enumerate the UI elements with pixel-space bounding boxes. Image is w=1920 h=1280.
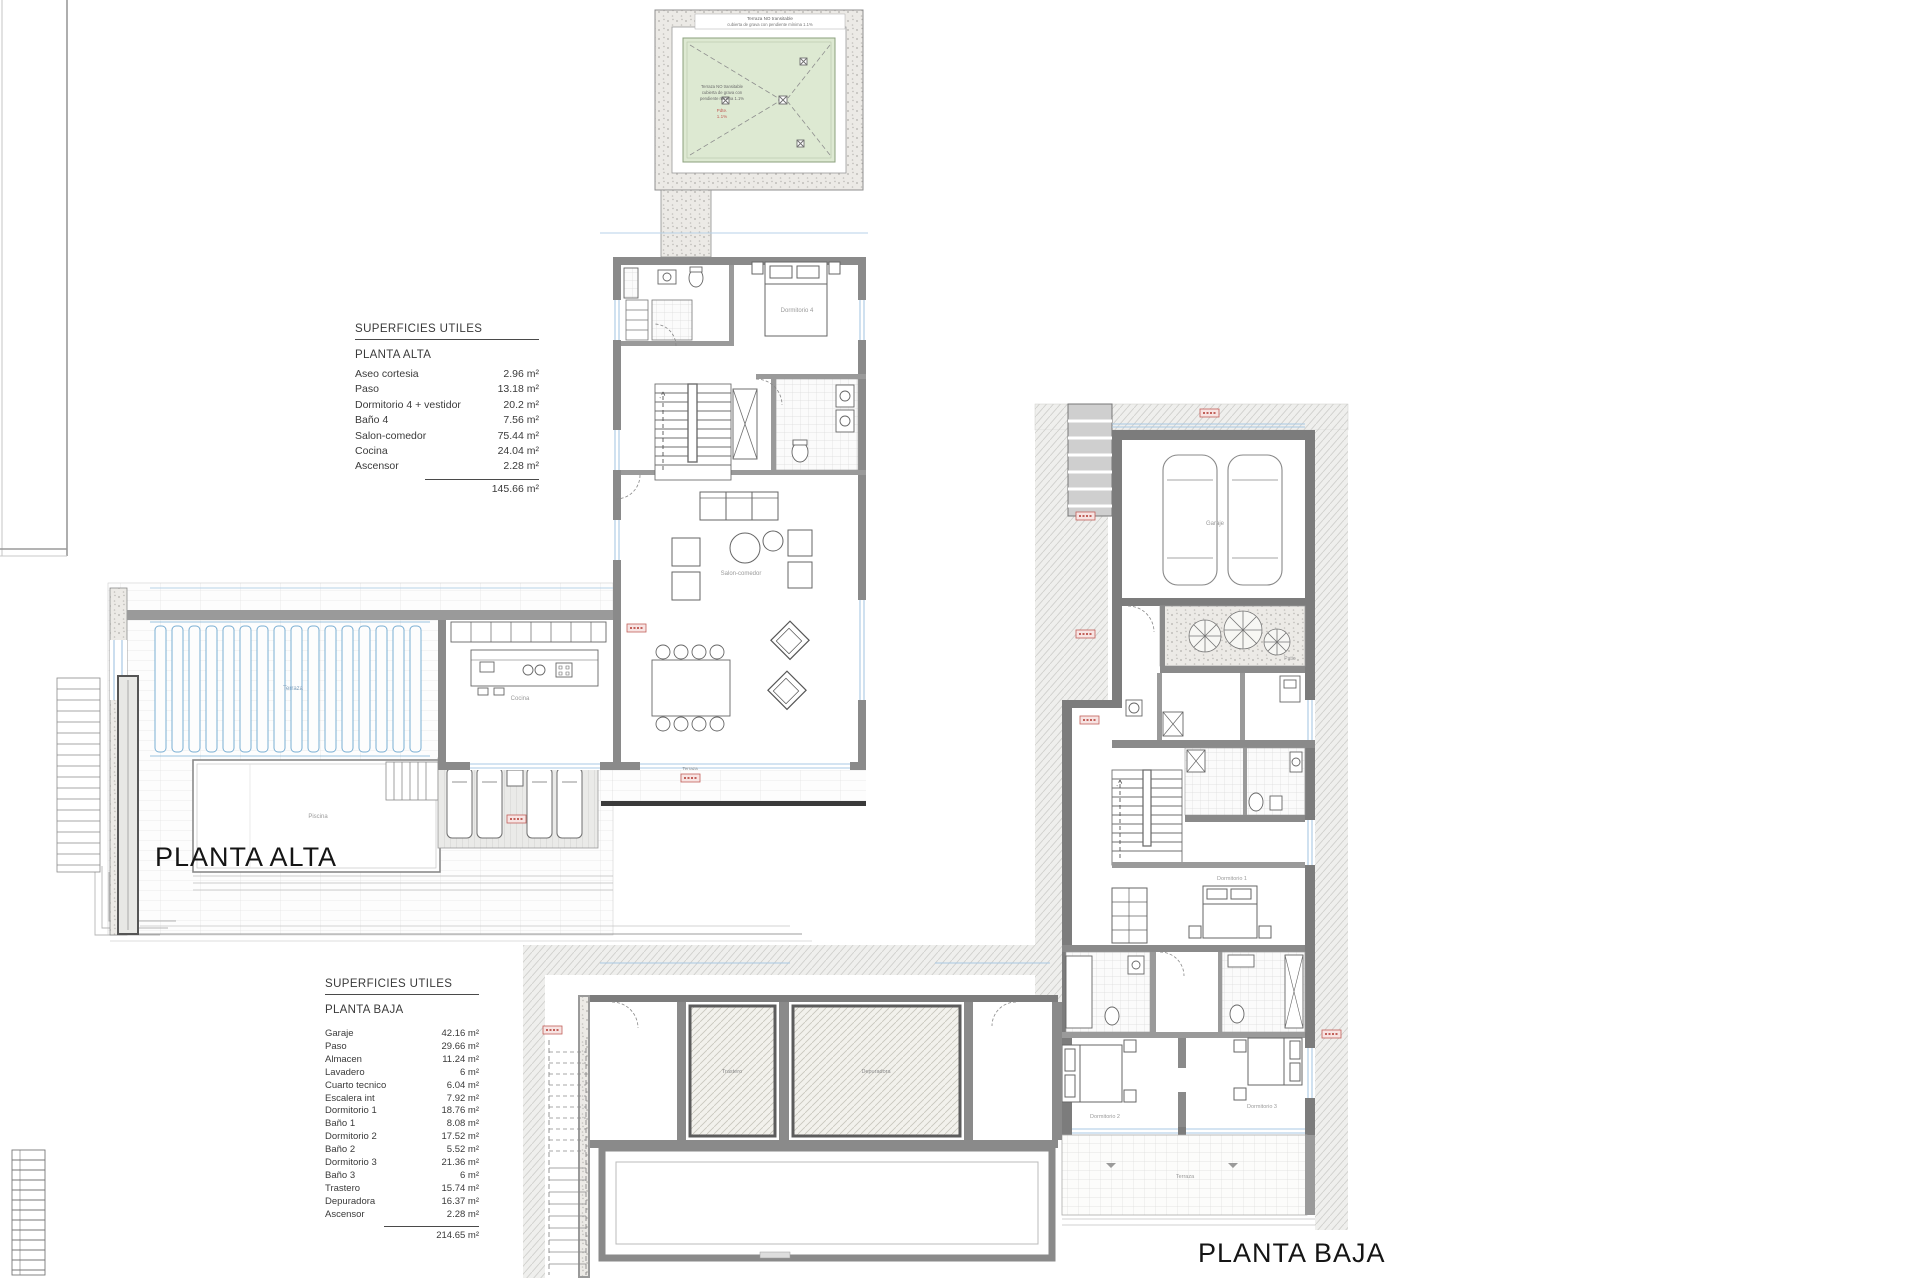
- floorplan-drawing: Terraza NO transitable cubierta de grava…: [0, 0, 1920, 1280]
- table-row: Depuradora16.37 m²: [325, 1196, 479, 1209]
- roof-detail-plan: Terraza NO transitable cubierta de grava…: [600, 10, 868, 257]
- bano4: [776, 379, 858, 470]
- roof-note-line2: cubierta de grava con: [702, 90, 743, 95]
- bath-band: [1185, 748, 1305, 822]
- table-header: SUPERFICIES UTILES: [355, 323, 539, 340]
- dormitorio2-label: Dormitorio 2: [1090, 1114, 1120, 1120]
- sun-deck: [438, 758, 598, 848]
- roof-red-note-line2: 1.1%: [717, 114, 727, 119]
- table-total: 145.66 m²: [425, 479, 539, 495]
- entry-steps: [1068, 404, 1112, 516]
- table-row: Dormitorio 321.36 m²: [325, 1157, 479, 1170]
- garaje-label: Garaje: [1206, 521, 1225, 527]
- roof-note-line1: Terraza NO transitable: [701, 84, 744, 89]
- kitchen: [451, 622, 606, 695]
- table-row: Ascensor2.28 m²: [355, 459, 539, 474]
- wardrobe: [626, 300, 692, 340]
- basement-wing-plan: Trastero Depuradora: [523, 945, 1062, 1278]
- table-header: SUPERFICIES UTILES: [325, 978, 479, 995]
- carpentry-tag-basement: [543, 1026, 562, 1034]
- table-row: Garaje42.16 m²: [325, 1028, 479, 1041]
- sheet-frame-lines: [0, 0, 67, 556]
- exterior-stair-west: [57, 678, 100, 872]
- table-rows: Aseo cortesia2.96 m² Paso13.18 m² Dormit…: [355, 367, 539, 475]
- table-row: Baño 18.08 m²: [325, 1118, 479, 1131]
- table-row: Baño 36 m²: [325, 1170, 479, 1183]
- table-row: Paso29.66 m²: [325, 1041, 479, 1054]
- table-row: Aseo cortesia2.96 m²: [355, 367, 539, 382]
- table-row: Cocina24.04 m²: [355, 444, 539, 459]
- table-row: Paso13.18 m²: [355, 382, 539, 397]
- table-row: Dormitorio 217.52 m²: [325, 1131, 479, 1144]
- bed-dormitorio4: [752, 262, 840, 336]
- table-rows: Garaje42.16 m² Paso29.66 m² Almacen11.24…: [325, 1028, 479, 1222]
- roof-banner-line1: Terraza NO transitable: [747, 16, 793, 21]
- drawing-sheet: Terraza NO transitable cubierta de grava…: [0, 0, 1920, 1280]
- trastero-label: Trastero: [722, 1069, 742, 1075]
- cocina-label: Cocina: [511, 696, 530, 702]
- table-row: Dormitorio 4 + vestidor20.2 m²: [355, 398, 539, 413]
- pool-label: Piscina: [308, 814, 328, 820]
- table-row: Lavadero6 m²: [325, 1067, 479, 1080]
- table-row: Baño 25.52 m²: [325, 1144, 479, 1157]
- pool-channel: [602, 1148, 1052, 1258]
- roof-banner-line2: cubierta de grava con pendiente mínima 1…: [727, 22, 813, 27]
- terrace-label: Terraza: [283, 686, 304, 692]
- surface-table-alta: SUPERFICIES UTILES PLANTA ALTA Aseo cort…: [355, 323, 539, 495]
- table-row: Trastero15.74 m²: [325, 1183, 479, 1196]
- roof-note-line3: pendiente mínima 1.1%: [700, 96, 744, 101]
- planta-alta-title: PLANTA ALTA: [155, 842, 337, 873]
- depuradora-label: Depuradora: [861, 1069, 891, 1075]
- table-row: Escalera int7.92 m²: [325, 1093, 479, 1106]
- table-row: Dormitorio 118.76 m²: [325, 1105, 479, 1118]
- roof-red-note-line1: Pdte.: [717, 108, 728, 113]
- deck-stair: [386, 762, 438, 800]
- table-floor-name: PLANTA ALTA: [355, 349, 539, 361]
- surface-table-baja: SUPERFICIES UTILES PLANTA BAJA Garaje42.…: [325, 978, 479, 1241]
- table-row: Salon-comedor75.44 m²: [355, 429, 539, 444]
- terraza-baja-label: Terraza: [1176, 1174, 1195, 1180]
- planta-baja-plan: Garaje Patio: [1035, 404, 1348, 1230]
- storage-rooms: Trastero Depuradora: [690, 1006, 960, 1136]
- corner-ladder: [12, 1150, 45, 1275]
- terraza-sur-label: Terraza: [682, 766, 698, 771]
- patio-label: Patio: [1284, 656, 1296, 662]
- dormitorio3-label: Dormitorio 3: [1247, 1104, 1277, 1110]
- table-row: Ascensor2.28 m²: [325, 1209, 479, 1222]
- table-floor-name: PLANTA BAJA: [325, 1004, 479, 1016]
- baja-terrace: Terraza: [1062, 1127, 1315, 1225]
- planta-baja-title: PLANTA BAJA: [1198, 1238, 1386, 1269]
- table-row: Almacen11.24 m²: [325, 1054, 479, 1067]
- dormitorio4-label: Dormitorio 4: [781, 308, 814, 314]
- salon-label: Salon-comedor: [721, 571, 762, 577]
- baja-staircase: [1112, 770, 1182, 865]
- table-row: Baño 47.56 m²: [355, 413, 539, 428]
- elevator: [733, 389, 757, 459]
- table-total: 214.65 m²: [384, 1226, 479, 1241]
- alta-staircase: [655, 384, 731, 480]
- table-row: Cuarto tecnico6.04 m²: [325, 1080, 479, 1093]
- dormitorio1-label: Dormitorio 1: [1217, 876, 1247, 882]
